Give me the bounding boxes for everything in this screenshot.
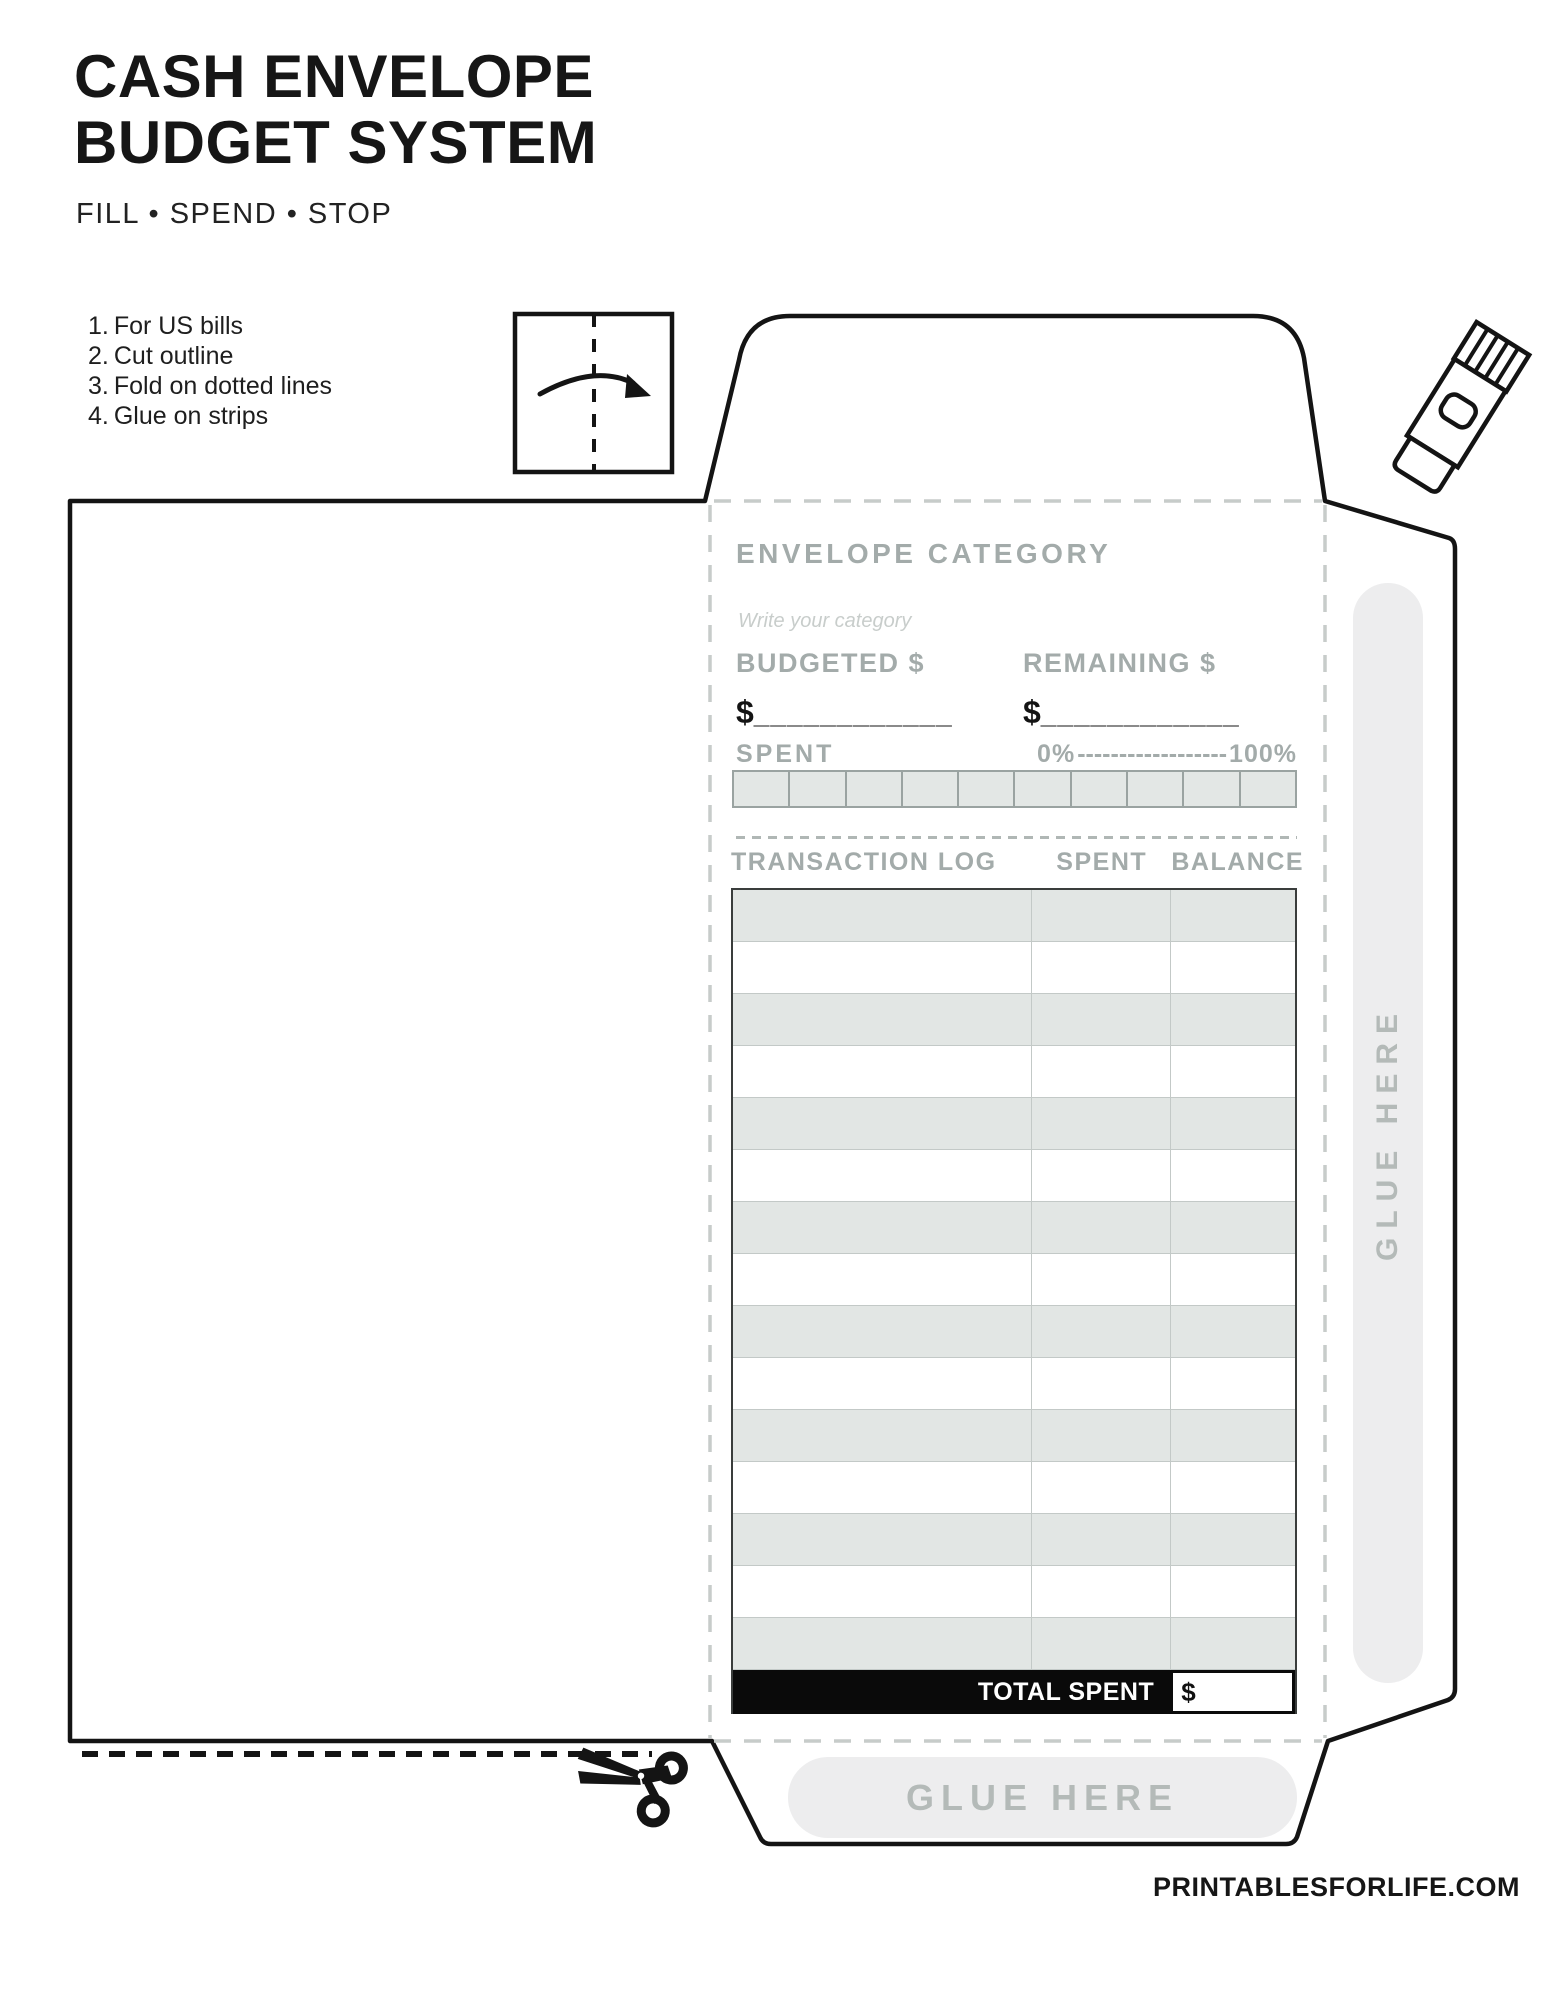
instruction-text: Glue on strips	[114, 402, 268, 431]
cell-description	[733, 1358, 1032, 1409]
glue-strip-bottom: GLUE HERE	[788, 1757, 1297, 1838]
progress-segment	[1184, 772, 1240, 806]
instruction-item: 2. Cut outline	[88, 341, 332, 371]
table-row	[733, 1254, 1295, 1306]
cell-balance	[1171, 1618, 1295, 1669]
progress-segment	[734, 772, 790, 806]
table-row	[733, 1098, 1295, 1150]
website-credit: PRINTABLESFORLIFE.COM	[0, 1872, 1520, 1903]
cell-balance	[1171, 1306, 1295, 1357]
dashed-separator	[736, 836, 1297, 839]
category-write-placeholder: Write your category	[738, 610, 911, 633]
page-title-line1: CASH ENVELOPE	[74, 44, 597, 110]
glue-strip-side: GLUE HERE	[1353, 583, 1423, 1683]
col-header-spent: SPENT	[1032, 848, 1171, 877]
instruction-list: 1. For US bills 2. Cut outline 3. Fold o…	[88, 311, 332, 431]
cell-balance	[1171, 1202, 1295, 1253]
progress-segment	[1241, 772, 1295, 806]
scale-dashes: ------------------	[1077, 740, 1227, 769]
total-spent-bar: TOTAL SPENT	[733, 1670, 1170, 1714]
transaction-table-header: TRANSACTION LOG SPENT BALANCE	[731, 848, 1297, 877]
remaining-label: REMAINING $	[1023, 648, 1217, 679]
table-row	[733, 1358, 1295, 1410]
cell-balance	[1171, 1462, 1295, 1513]
progress-segment	[790, 772, 846, 806]
cell-balance	[1171, 890, 1295, 941]
cell-description	[733, 1618, 1032, 1669]
table-row	[733, 1202, 1295, 1254]
table-footer: TOTAL SPENT $	[733, 1670, 1295, 1714]
cell-spent	[1032, 942, 1171, 993]
instruction-text: Cut outline	[114, 342, 234, 371]
cell-spent	[1032, 1358, 1171, 1409]
page-title-line2: BUDGET SYSTEM	[74, 110, 597, 176]
instruction-text: For US bills	[114, 312, 243, 341]
cell-spent	[1032, 994, 1171, 1045]
cell-balance	[1171, 942, 1295, 993]
cell-spent	[1032, 1098, 1171, 1149]
instruction-number: 4.	[88, 402, 109, 431]
cell-balance	[1171, 1410, 1295, 1461]
progress-segment	[1128, 772, 1184, 806]
spent-meter-scale: 0% ------------------ 100%	[1020, 740, 1297, 769]
cell-description	[733, 1150, 1032, 1201]
cell-balance	[1171, 1358, 1295, 1409]
cell-spent	[1032, 1514, 1171, 1565]
table-row	[733, 994, 1295, 1046]
table-row	[733, 1462, 1295, 1514]
glue-stick-icon	[1388, 322, 1529, 496]
cell-spent	[1032, 1046, 1171, 1097]
cell-description	[733, 994, 1032, 1045]
transaction-rows	[733, 890, 1295, 1670]
transaction-table: TOTAL SPENT $	[731, 888, 1297, 1714]
page-title: CASH ENVELOPE BUDGET SYSTEM	[74, 44, 597, 176]
printable-sheet: CASH ENVELOPE BUDGET SYSTEM FILL • SPEND…	[0, 0, 1545, 2000]
table-row	[733, 1410, 1295, 1462]
table-row	[733, 1150, 1295, 1202]
table-row	[733, 1514, 1295, 1566]
budgeted-amount-blank: $ ____________	[736, 694, 953, 731]
table-row	[733, 1618, 1295, 1670]
col-header-balance: BALANCE	[1171, 848, 1297, 877]
cell-balance	[1171, 1254, 1295, 1305]
cell-spent	[1032, 1618, 1171, 1669]
currency-symbol: $	[1023, 694, 1041, 731]
progress-segment	[959, 772, 1015, 806]
spent-meter-label: SPENT	[736, 740, 834, 769]
cell-spent	[1032, 1462, 1171, 1513]
cell-description	[733, 1046, 1032, 1097]
cell-description	[733, 1410, 1032, 1461]
table-row	[733, 1566, 1295, 1618]
instruction-number: 1.	[88, 312, 109, 341]
scale-end: 100%	[1229, 740, 1297, 769]
tagline: FILL • SPEND • STOP	[76, 198, 392, 231]
category-heading: ENVELOPE CATEGORY	[736, 538, 1111, 570]
cell-description	[733, 1098, 1032, 1149]
total-spent-value-cell: $	[1170, 1670, 1295, 1714]
cell-description	[733, 1306, 1032, 1357]
cell-description	[733, 1202, 1032, 1253]
currency-symbol: $	[1181, 1677, 1195, 1708]
table-row	[733, 942, 1295, 994]
table-row	[733, 1306, 1295, 1358]
cell-description	[733, 1462, 1032, 1513]
instruction-number: 3.	[88, 372, 109, 401]
glue-strip-side-label: GLUE HERE	[1371, 1005, 1405, 1261]
progress-segment	[1072, 772, 1128, 806]
cell-balance	[1171, 1046, 1295, 1097]
cell-description	[733, 1254, 1032, 1305]
instruction-item: 4. Glue on strips	[88, 401, 332, 431]
scale-start: 0%	[1037, 740, 1075, 769]
instruction-item: 3. Fold on dotted lines	[88, 371, 332, 401]
cell-balance	[1171, 1150, 1295, 1201]
cell-spent	[1032, 1150, 1171, 1201]
cell-balance	[1171, 994, 1295, 1045]
cell-spent	[1032, 1202, 1171, 1253]
cell-balance	[1171, 1514, 1295, 1565]
cell-spent	[1032, 1254, 1171, 1305]
currency-symbol: $	[736, 694, 754, 731]
cell-description	[733, 890, 1032, 941]
cell-balance	[1171, 1566, 1295, 1617]
cell-description	[733, 1566, 1032, 1617]
col-header-transaction-log: TRANSACTION LOG	[731, 848, 1032, 877]
instruction-text: Fold on dotted lines	[114, 372, 332, 401]
cell-balance	[1171, 1098, 1295, 1149]
blank-write-line: ____________	[1041, 698, 1240, 730]
table-row	[733, 890, 1295, 942]
instruction-number: 2.	[88, 342, 109, 371]
progress-segment	[1015, 772, 1071, 806]
progress-segment	[903, 772, 959, 806]
glue-strip-bottom-label: GLUE HERE	[906, 1777, 1179, 1819]
spent-progress-bar	[732, 770, 1297, 808]
fold-arrow-icon	[515, 314, 672, 472]
remaining-amount-blank: $ ____________	[1023, 694, 1240, 731]
cell-spent	[1032, 1566, 1171, 1617]
cell-spent	[1032, 890, 1171, 941]
cell-spent	[1032, 1410, 1171, 1461]
budgeted-label: BUDGETED $	[736, 648, 925, 679]
cell-description	[733, 1514, 1032, 1565]
instruction-item: 1. For US bills	[88, 311, 332, 341]
table-row	[733, 1046, 1295, 1098]
blank-write-line: ____________	[754, 698, 953, 730]
progress-segment	[847, 772, 903, 806]
cell-description	[733, 942, 1032, 993]
cell-spent	[1032, 1306, 1171, 1357]
